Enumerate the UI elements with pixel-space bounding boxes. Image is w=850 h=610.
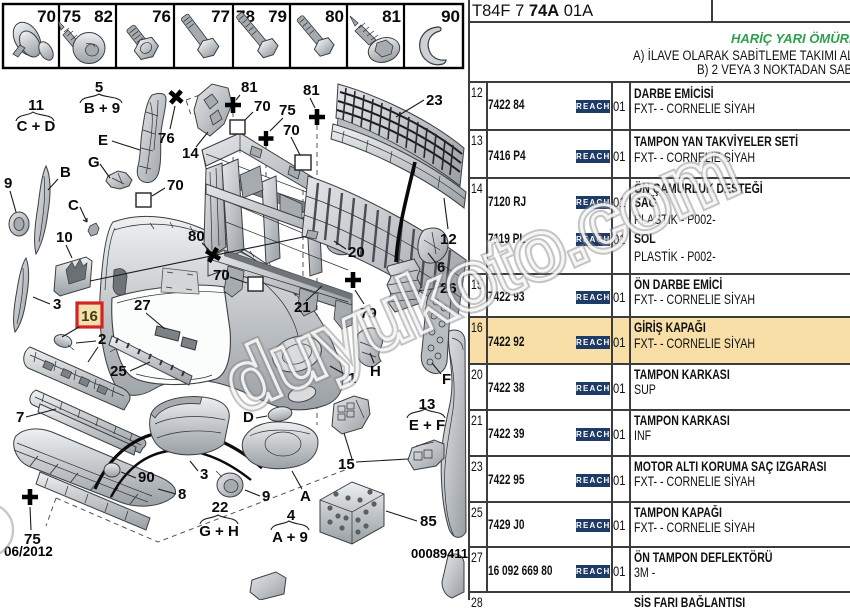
- svg-text:duyukoto.com: duyukoto.com: [209, 121, 750, 431]
